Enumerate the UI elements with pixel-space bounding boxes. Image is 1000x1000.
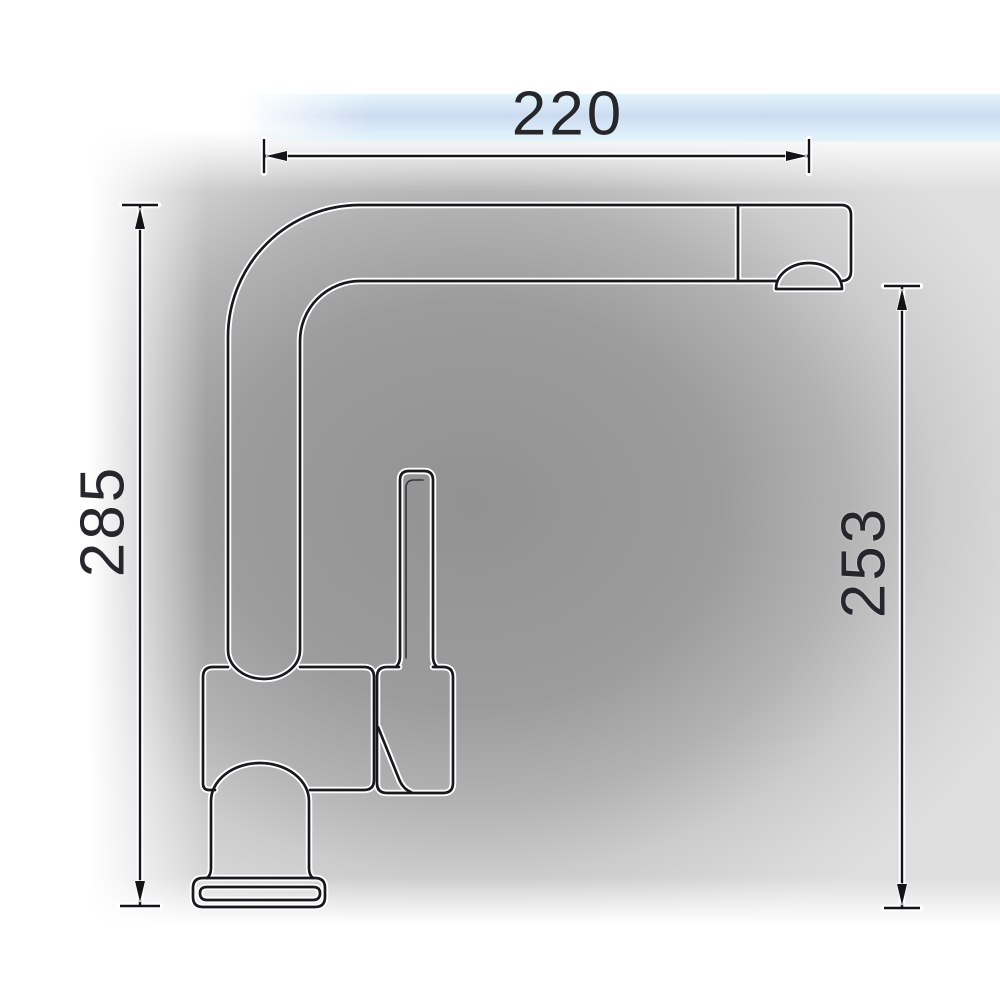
dimension-label-top-width: 220: [512, 79, 624, 150]
halo-plate: [193, 878, 325, 907]
halo-handle: [377, 667, 453, 793]
arrow-left-up: [135, 208, 145, 229]
arrow-left-down: [135, 881, 145, 902]
halo-spout: [228, 205, 738, 679]
halo-aerator: [776, 263, 842, 289]
arrow-right-down: [897, 884, 907, 905]
stroke-halo-layer: [120, 139, 920, 908]
halo-arch: [207, 763, 313, 878]
arrow-top-left: [266, 151, 287, 161]
dimension-lines-layer: [120, 139, 920, 908]
dimension-label-left-height: 285: [68, 465, 139, 577]
faucet-outline-layer: [193, 205, 851, 907]
faucet-technical-drawing: [0, 0, 1000, 1000]
lever-inner-contour: [406, 480, 423, 658]
spout-tube-outline: [228, 205, 738, 679]
faucet-dimension-diagram: 220 285 253: [0, 0, 1000, 1000]
halo-lever: [396, 471, 437, 667]
dimension-label-right-height: 253: [829, 506, 900, 618]
handle-housing-outline: [377, 667, 453, 793]
arrow-top-right: [786, 151, 807, 161]
arrow-right-up: [897, 289, 907, 310]
